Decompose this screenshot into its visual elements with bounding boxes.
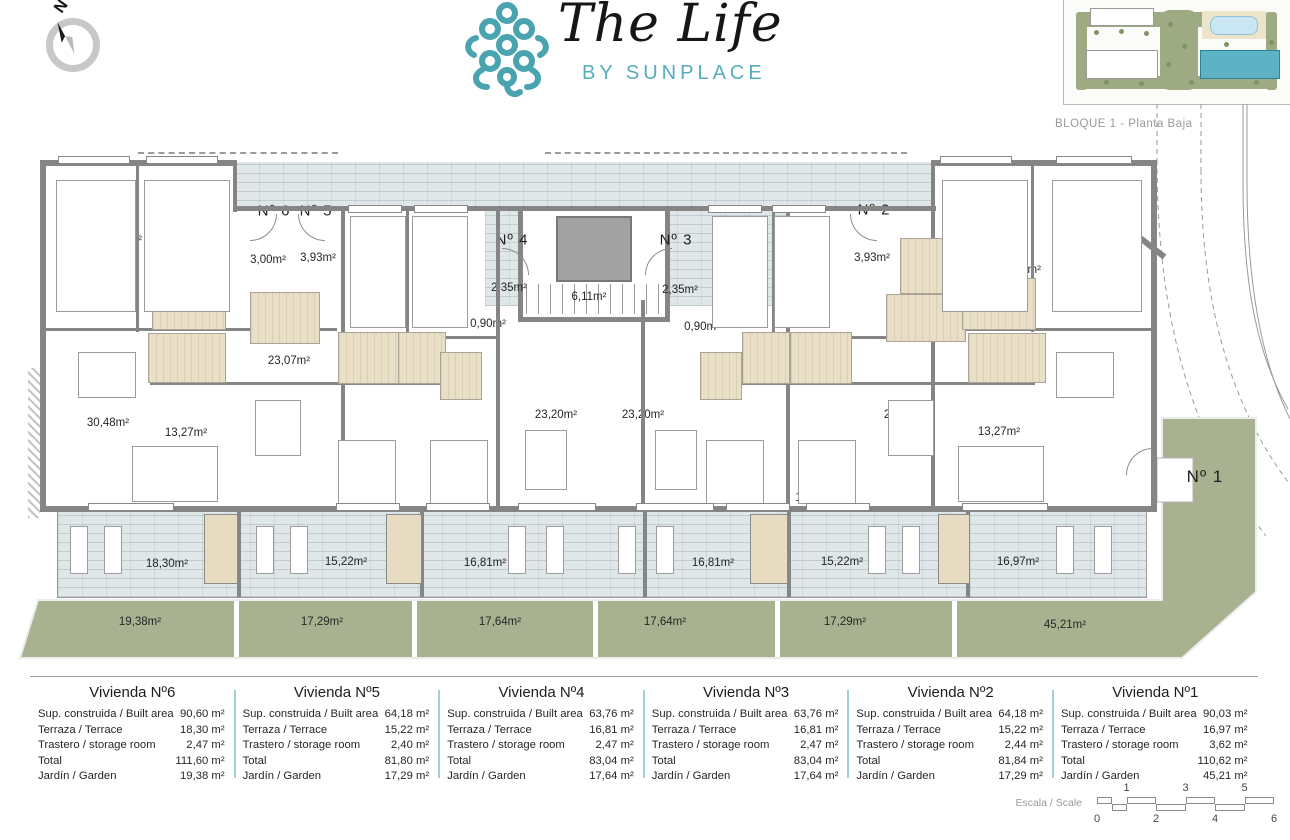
spec-value: 2,47 m² xyxy=(595,738,633,754)
bathroom-floor xyxy=(398,332,446,384)
window xyxy=(726,503,790,511)
spec-row: Sup. construida / Built area90,60 m² xyxy=(30,707,235,723)
scale-tick: 6 xyxy=(1271,813,1277,825)
sun-lounger xyxy=(868,526,886,574)
window xyxy=(636,503,714,511)
room-area-label: 6,11m² xyxy=(572,291,607,303)
spec-value: 64,18 m² xyxy=(385,707,430,723)
room-area-label: 30,48m² xyxy=(87,417,129,429)
furniture xyxy=(958,446,1044,502)
sun-lounger xyxy=(1056,526,1074,574)
spec-value: 15,22 m² xyxy=(998,723,1043,739)
unit-number-label: Nº 4 xyxy=(496,232,529,249)
spec-label: Terraza / Terrace xyxy=(1061,723,1146,739)
wall xyxy=(136,160,139,332)
sun-lounger xyxy=(256,526,274,574)
furniture xyxy=(774,216,830,328)
spec-value: 19,38 m² xyxy=(180,769,225,785)
room-area-label: 3,00m² xyxy=(250,254,286,266)
garden-area-label: 17,64m² xyxy=(479,616,521,628)
spec-label: Trastero / storage room xyxy=(243,738,361,754)
window xyxy=(708,205,762,213)
spec-value: 15,22 m² xyxy=(385,723,430,739)
spec-label: Trastero / storage room xyxy=(1061,738,1179,754)
plan-frame-line xyxy=(30,676,1258,677)
window xyxy=(940,156,1012,164)
furniture xyxy=(798,440,856,504)
unit-table: Vivienda Nº1Sup. construida / Built area… xyxy=(1053,682,1258,782)
spec-label: Total xyxy=(856,754,880,770)
window xyxy=(58,156,130,164)
spec-label: Trastero / storage room xyxy=(856,738,974,754)
bathroom-floor xyxy=(338,332,400,384)
furniture xyxy=(338,440,396,504)
room-area-label: 13,27m² xyxy=(165,427,207,439)
furniture xyxy=(888,400,934,456)
scale-segment xyxy=(1186,797,1216,804)
table-divider xyxy=(1052,690,1054,778)
spec-value: 2,47 m² xyxy=(800,738,838,754)
railing-ticks xyxy=(138,152,338,154)
room-area-label: 0,90m² xyxy=(470,318,506,330)
terrace-area-label: 15,22m² xyxy=(821,556,863,568)
spec-label: Total xyxy=(652,754,676,770)
spec-value: 90,60 m² xyxy=(180,707,225,723)
sun-lounger xyxy=(508,526,526,574)
spec-value: 63,76 m² xyxy=(794,707,839,723)
scale-segment xyxy=(1245,797,1275,804)
room-area-label: 3,93m² xyxy=(300,252,336,264)
wall xyxy=(233,160,237,212)
unit-table: Vivienda Nº2Sup. construida / Built area… xyxy=(848,682,1053,782)
bathroom-floor xyxy=(968,333,1046,383)
scale-tick: 1 xyxy=(1123,782,1129,794)
bathroom-floor xyxy=(742,332,790,384)
furniture xyxy=(144,180,230,312)
spec-row: Trastero / storage room2,44 m² xyxy=(848,738,1053,754)
spec-row: Trastero / storage room2,40 m² xyxy=(235,738,440,754)
wall xyxy=(406,206,409,338)
spec-value: 17,29 m² xyxy=(385,769,430,785)
window xyxy=(1056,156,1132,164)
sun-lounger xyxy=(546,526,564,574)
scale-segment xyxy=(1215,804,1245,811)
spec-value: 63,76 m² xyxy=(589,707,634,723)
furniture xyxy=(430,440,488,504)
sun-lounger xyxy=(1094,526,1112,574)
furniture xyxy=(942,180,1028,312)
spec-label: Sup. construida / Built area xyxy=(1061,707,1197,723)
scale-bar: Escala / Scale 1350246 xyxy=(990,780,1290,830)
spec-value: 16,81 m² xyxy=(589,723,634,739)
spec-label: Total xyxy=(243,754,267,770)
window xyxy=(146,156,218,164)
furniture xyxy=(255,400,301,456)
window xyxy=(518,503,596,511)
spec-value: 2,47 m² xyxy=(186,738,224,754)
storage-room xyxy=(938,514,970,584)
furniture xyxy=(78,352,136,398)
spec-value: 83,04 m² xyxy=(794,754,839,770)
scale-label: Escala / Scale xyxy=(990,797,1082,809)
scale-segment xyxy=(1156,804,1186,811)
window xyxy=(336,503,400,511)
scale-tick: 4 xyxy=(1212,813,1218,825)
spec-value: 16,81 m² xyxy=(794,723,839,739)
window xyxy=(88,503,174,511)
unit-summary-tables: Vivienda Nº6Sup. construida / Built area… xyxy=(30,682,1258,782)
spec-label: Trastero / storage room xyxy=(652,738,770,754)
bathroom-floor xyxy=(148,333,226,383)
spec-row: Total83,04 m² xyxy=(644,754,849,770)
bathroom-floor xyxy=(700,352,742,400)
spec-label: Terraza / Terrace xyxy=(243,723,328,739)
table-divider xyxy=(438,690,440,778)
window xyxy=(414,205,468,213)
furniture xyxy=(1052,180,1142,312)
scale-segment xyxy=(1127,797,1157,804)
spec-row: Sup. construida / Built area64,18 m² xyxy=(848,707,1053,723)
unit-table-title: Vivienda Nº5 xyxy=(235,684,440,701)
room-area-label: 23,20m² xyxy=(535,409,577,421)
spec-value: 3,62 m² xyxy=(1209,738,1247,754)
spec-label: Total xyxy=(38,754,62,770)
garden-area-label: 19,38m² xyxy=(119,616,161,628)
window xyxy=(806,503,870,511)
unit-number-label: Nº 3 xyxy=(660,232,693,249)
furniture xyxy=(350,216,406,328)
furniture xyxy=(712,216,768,328)
spec-value: 2,40 m² xyxy=(391,738,429,754)
spec-value: 16,97 m² xyxy=(1203,723,1248,739)
spec-value: 2,44 m² xyxy=(1005,738,1043,754)
room-area-label: 2,35m² xyxy=(662,284,698,296)
table-divider xyxy=(234,690,236,778)
spec-label: Terraza / Terrace xyxy=(447,723,532,739)
room-area-label: 23,07m² xyxy=(268,355,310,367)
railing-ticks xyxy=(545,152,907,154)
unit-table-title: Vivienda Nº3 xyxy=(644,684,849,701)
sun-lounger xyxy=(290,526,308,574)
spec-row: Jardín / Garden19,38 m² xyxy=(30,769,235,785)
spec-row: Terraza / Terrace15,22 m² xyxy=(848,723,1053,739)
scale-tick: 2 xyxy=(1153,813,1159,825)
spec-row: Trastero / storage room2,47 m² xyxy=(439,738,644,754)
terrace-area-label: 16,81m² xyxy=(464,557,506,569)
garden-area-label: 17,64m² xyxy=(644,616,686,628)
wall xyxy=(641,300,645,512)
spec-row: Terraza / Terrace15,22 m² xyxy=(235,723,440,739)
bathroom-floor xyxy=(250,292,320,344)
spec-value: 17,64 m² xyxy=(589,769,634,785)
spec-row: Sup. construida / Built area63,76 m² xyxy=(644,707,849,723)
terrace-area-label: 16,81m² xyxy=(692,557,734,569)
terrace-area-label: 18,30m² xyxy=(146,558,188,570)
bathroom-floor xyxy=(440,352,482,400)
spec-value: 110,62 m² xyxy=(1198,754,1248,770)
storage-room xyxy=(204,514,238,584)
spec-value: 17,64 m² xyxy=(794,769,839,785)
spec-row: Terraza / Terrace16,97 m² xyxy=(1053,723,1258,739)
garden-area-label: 17,29m² xyxy=(824,616,866,628)
spec-row: Jardín / Garden17,29 m² xyxy=(235,769,440,785)
furniture xyxy=(1056,352,1114,398)
spec-row: Sup. construida / Built area90,03 m² xyxy=(1053,707,1258,723)
scale-tick: 3 xyxy=(1182,782,1188,794)
walkway-band xyxy=(235,162,935,210)
spec-value: 90,03 m² xyxy=(1203,707,1248,723)
spec-label: Jardín / Garden xyxy=(243,769,322,785)
spec-label: Sup. construida / Built area xyxy=(38,707,174,723)
room-area-label: 3,93m² xyxy=(854,252,890,264)
spec-row: Trastero / storage room2,47 m² xyxy=(30,738,235,754)
spec-label: Total xyxy=(447,754,471,770)
spec-label: Trastero / storage room xyxy=(447,738,565,754)
furniture xyxy=(655,430,697,490)
unit-table-title: Vivienda Nº4 xyxy=(439,684,644,701)
spec-row: Terraza / Terrace16,81 m² xyxy=(439,723,644,739)
spec-value: 18,30 m² xyxy=(180,723,225,739)
scale-segment xyxy=(1097,797,1112,804)
scale-tick: 5 xyxy=(1241,782,1247,794)
unit-table: Vivienda Nº3Sup. construida / Built area… xyxy=(644,682,849,782)
spec-row: Total111,60 m² xyxy=(30,754,235,770)
spec-label: Sup. construida / Built area xyxy=(243,707,379,723)
spec-label: Trastero / storage room xyxy=(38,738,156,754)
furniture xyxy=(412,216,468,328)
wall xyxy=(496,206,500,512)
spec-label: Terraza / Terrace xyxy=(652,723,737,739)
spec-label: Jardín / Garden xyxy=(447,769,526,785)
wall xyxy=(40,160,46,512)
spec-value: 83,04 m² xyxy=(589,754,634,770)
retaining-wall-hatch xyxy=(28,368,40,518)
spec-label: Sup. construida / Built area xyxy=(652,707,788,723)
scale-segment xyxy=(1112,804,1127,811)
spec-row: Total83,04 m² xyxy=(439,754,644,770)
unit-table-title: Vivienda Nº1 xyxy=(1053,684,1258,701)
elevator-shaft xyxy=(556,216,632,282)
terrace-area-label: 15,22m² xyxy=(325,556,367,568)
spec-row: Trastero / storage room3,62 m² xyxy=(1053,738,1258,754)
spec-label: Sup. construida / Built area xyxy=(856,707,992,723)
spec-label: Terraza / Terrace xyxy=(38,723,123,739)
spec-row: Trastero / storage room2,47 m² xyxy=(644,738,849,754)
spec-row: Terraza / Terrace18,30 m² xyxy=(30,723,235,739)
spec-label: Total xyxy=(1061,754,1085,770)
spec-label: Jardín / Garden xyxy=(38,769,117,785)
storage-room xyxy=(750,514,788,584)
spec-row: Sup. construida / Built area64,18 m² xyxy=(235,707,440,723)
unit-table: Vivienda Nº4Sup. construida / Built area… xyxy=(439,682,644,782)
table-divider xyxy=(847,690,849,778)
spec-row: Terraza / Terrace16,81 m² xyxy=(644,723,849,739)
spec-label: Sup. construida / Built area xyxy=(447,707,583,723)
bathroom-floor xyxy=(790,332,852,384)
unit-table-title: Vivienda Nº6 xyxy=(30,684,235,701)
furniture xyxy=(56,180,136,312)
unit-table: Vivienda Nº6Sup. construida / Built area… xyxy=(30,682,235,782)
spec-value: 64,18 m² xyxy=(998,707,1043,723)
window xyxy=(348,205,402,213)
sun-lounger xyxy=(70,526,88,574)
spec-row: Jardín / Garden17,64 m² xyxy=(439,769,644,785)
furniture xyxy=(132,446,218,502)
spec-row: Total110,62 m² xyxy=(1053,754,1258,770)
spec-label: Terraza / Terrace xyxy=(856,723,941,739)
garden-area-label: 17,29m² xyxy=(301,616,343,628)
window xyxy=(772,205,826,213)
furniture xyxy=(525,430,567,490)
spec-row: Jardín / Garden17,64 m² xyxy=(644,769,849,785)
window xyxy=(426,503,490,511)
garden-area-label: 45,21m² xyxy=(1044,619,1086,631)
wall xyxy=(643,512,647,597)
unit-number-label: Nº 1 xyxy=(1187,467,1224,487)
window xyxy=(962,503,1048,511)
storage-room xyxy=(386,514,422,584)
sun-lounger xyxy=(104,526,122,574)
room-area-label: 13,27m² xyxy=(978,426,1020,438)
scale-tick: 0 xyxy=(1094,813,1100,825)
spec-row: Total81,80 m² xyxy=(235,754,440,770)
spec-label: Jardín / Garden xyxy=(856,769,935,785)
spec-row: Total81,84 m² xyxy=(848,754,1053,770)
terrace-area-label: 16,97m² xyxy=(997,556,1039,568)
sun-lounger xyxy=(902,526,920,574)
spec-value: 81,80 m² xyxy=(385,754,430,770)
sun-lounger xyxy=(618,526,636,574)
spec-value: 111,60 m² xyxy=(175,754,224,770)
table-divider xyxy=(643,690,645,778)
furniture xyxy=(706,440,764,504)
spec-label: Jardín / Garden xyxy=(652,769,731,785)
sun-lounger xyxy=(656,526,674,574)
spec-row: Sup. construida / Built area63,76 m² xyxy=(439,707,644,723)
unit-table: Vivienda Nº5Sup. construida / Built area… xyxy=(235,682,440,782)
spec-value: 81,84 m² xyxy=(998,754,1043,770)
unit-table-title: Vivienda Nº2 xyxy=(848,684,1053,701)
